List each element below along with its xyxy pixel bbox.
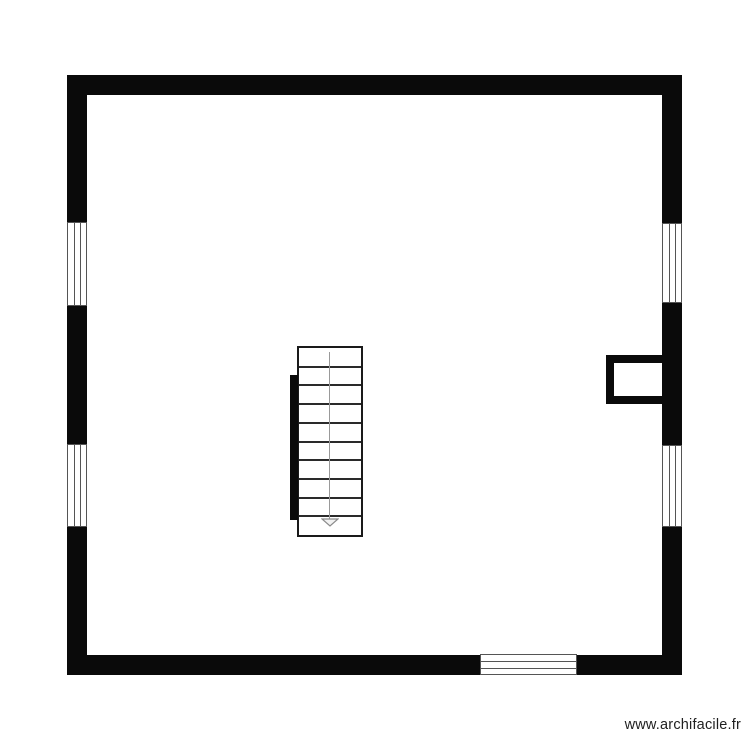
wall-right[interactable]: [662, 75, 682, 675]
stair-down-arrow-icon: [321, 518, 339, 528]
window-pane-line: [80, 223, 81, 305]
stair-tread-line: [299, 384, 361, 386]
window-pane-line: [481, 668, 576, 669]
window-pane-line: [675, 446, 676, 526]
stair-side-wall[interactable]: [290, 375, 298, 520]
window-pane-line: [80, 445, 81, 526]
window-pane-line: [74, 223, 75, 305]
chimney-duct[interactable]: [606, 355, 662, 404]
wall-top[interactable]: [67, 75, 682, 95]
plan-canvas: www.archifacile.fr: [0, 0, 750, 750]
stair-tread-line: [299, 497, 361, 499]
window-left-2[interactable]: [67, 444, 87, 527]
window-right-1[interactable]: [662, 223, 682, 303]
stair-tread-line: [299, 366, 361, 368]
wall-left[interactable]: [67, 75, 87, 675]
window-left-1[interactable]: [67, 222, 87, 306]
window-right-2[interactable]: [662, 445, 682, 527]
window-pane-line: [74, 445, 75, 526]
wall-bottom[interactable]: [67, 655, 682, 675]
stair-tread-line: [299, 422, 361, 424]
stair-direction-line: [329, 352, 330, 520]
stair-tread-line: [299, 515, 361, 517]
staircase[interactable]: [297, 346, 363, 537]
watermark: www.archifacile.fr: [625, 717, 741, 733]
stair-tread-line: [299, 459, 361, 461]
stair-tread-line: [299, 403, 361, 405]
window-pane-line: [669, 224, 670, 302]
stair-tread-line: [299, 441, 361, 443]
window-pane-line: [669, 446, 670, 526]
window-bottom[interactable]: [480, 654, 577, 675]
window-pane-line: [675, 224, 676, 302]
window-pane-line: [481, 661, 576, 662]
stair-tread-line: [299, 478, 361, 480]
